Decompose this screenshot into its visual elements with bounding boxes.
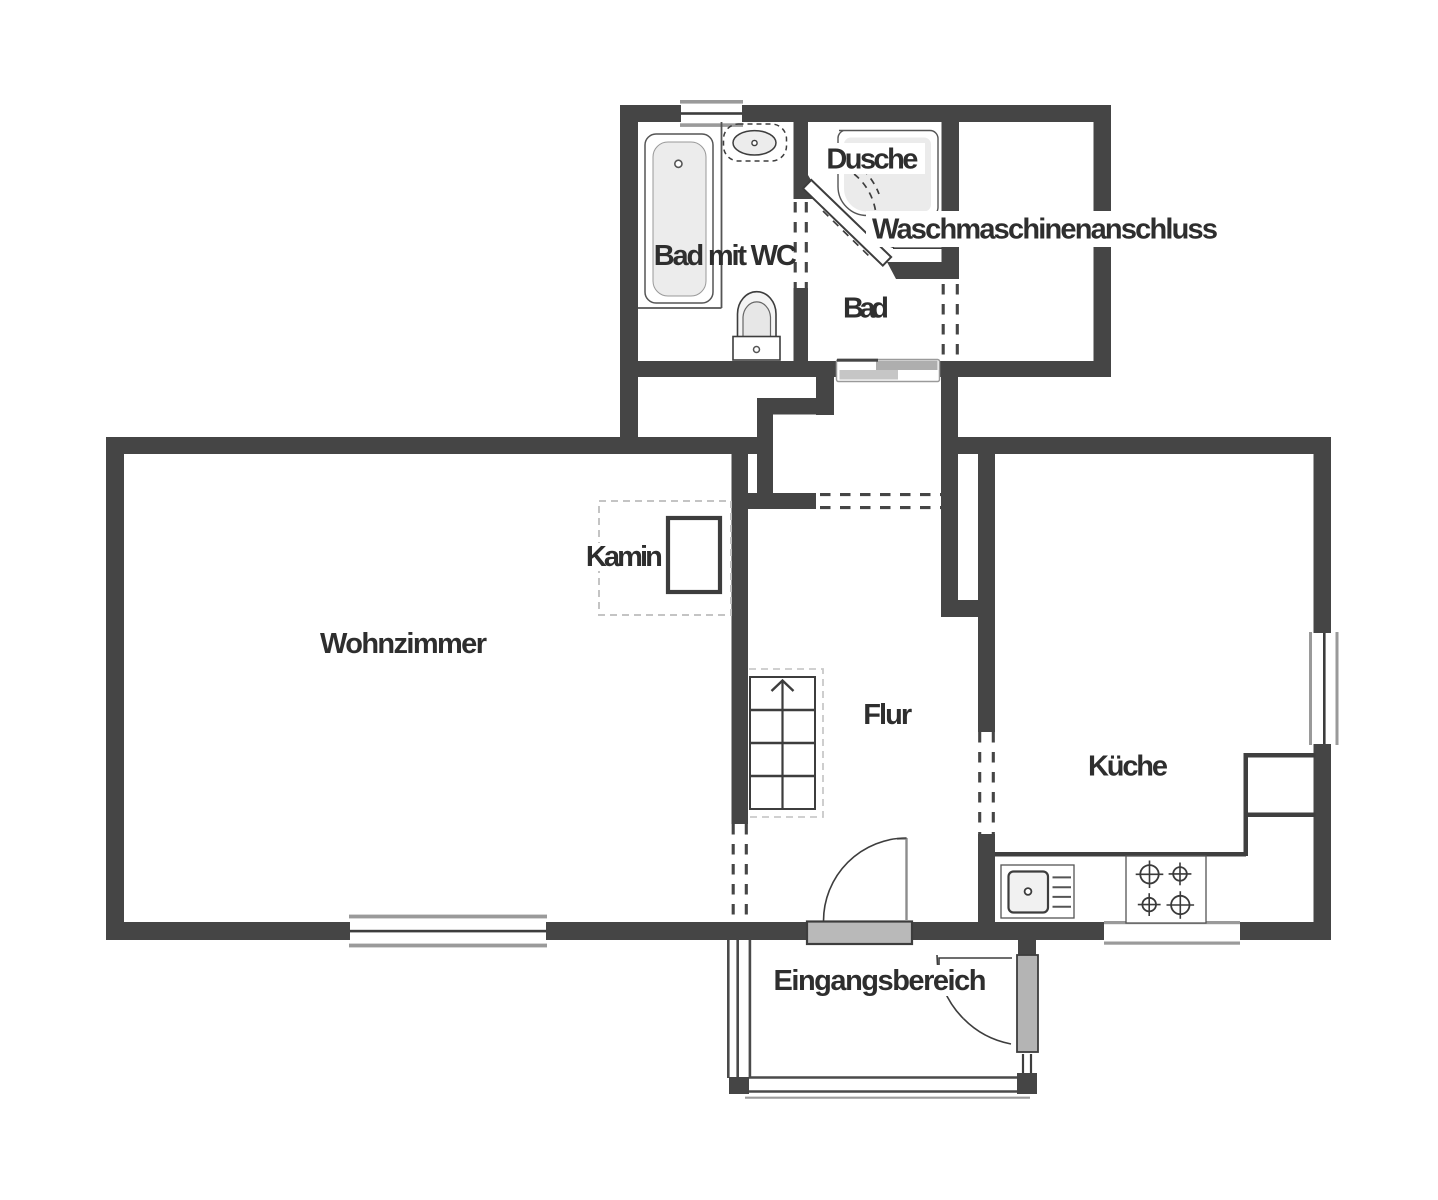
svg-text:Wohnzimmer: Wohnzimmer [320, 628, 487, 660]
svg-text:Küche: Küche [1088, 751, 1168, 783]
svg-text:Dusche: Dusche [826, 144, 918, 176]
svg-text:Flur: Flur [863, 699, 912, 731]
svg-text:Bad mit WC: Bad mit WC [654, 240, 797, 272]
svg-text:Bad: Bad [843, 293, 889, 325]
svg-text:Kamin: Kamin [586, 541, 663, 573]
svg-text:Waschmaschinenanschluss: Waschmaschinenanschluss [872, 214, 1218, 246]
svg-text:Eingangsbereich: Eingangsbereich [774, 965, 987, 997]
